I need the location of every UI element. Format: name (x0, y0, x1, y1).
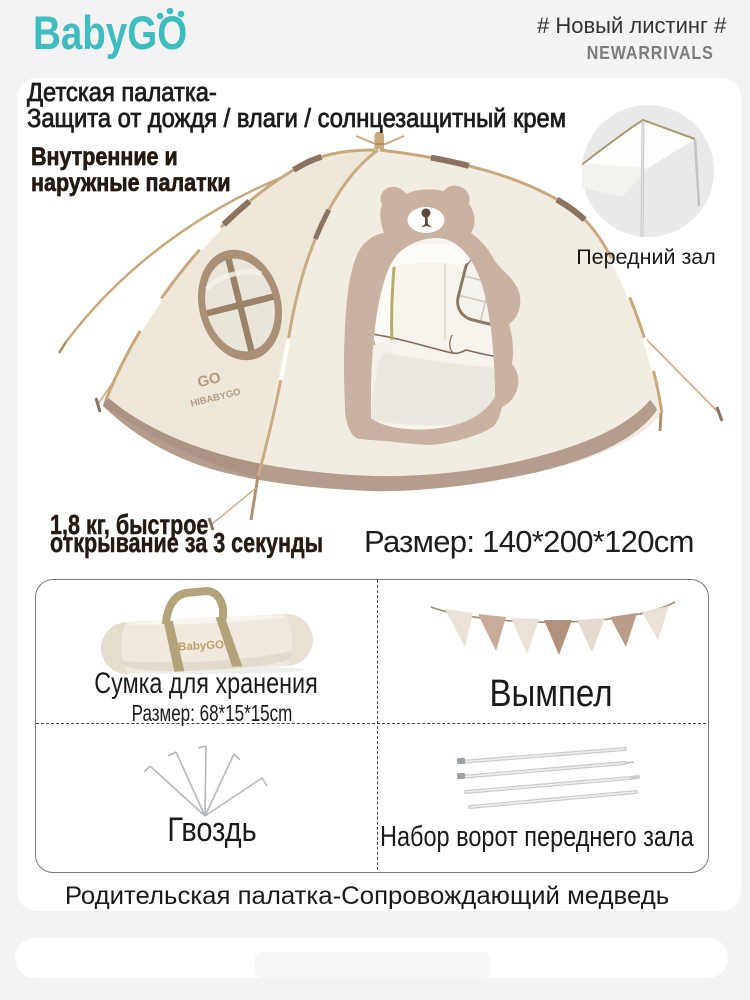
svg-text:BabyGO: BabyGO (178, 639, 225, 653)
